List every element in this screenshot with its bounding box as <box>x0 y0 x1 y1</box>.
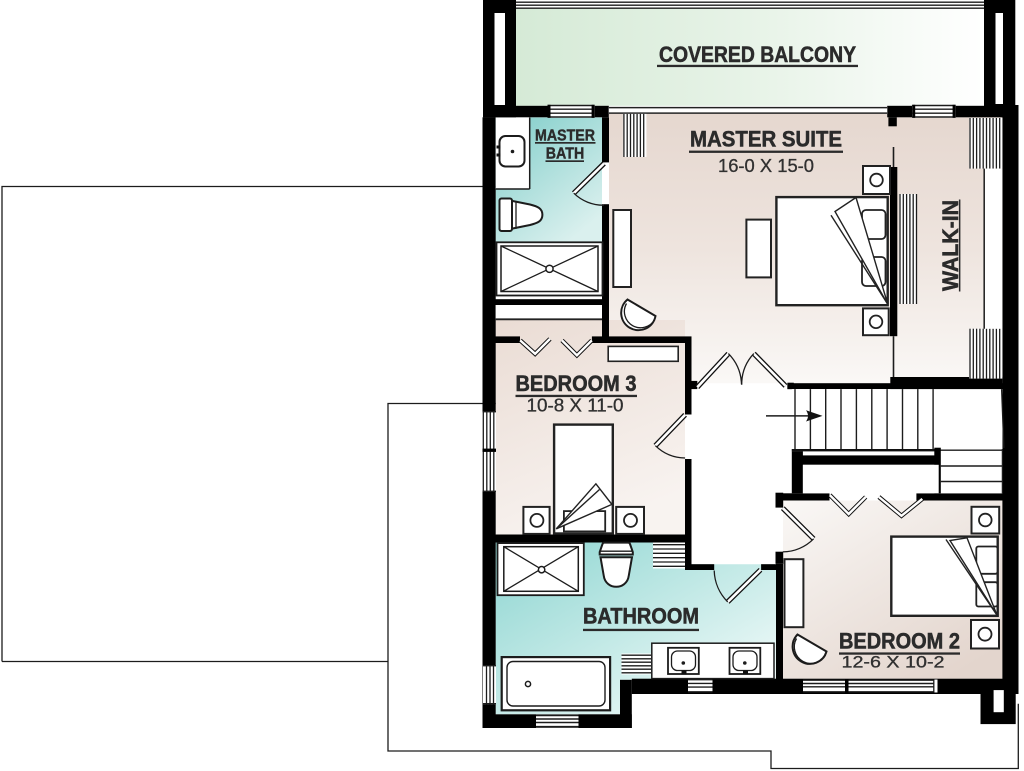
svg-text:BEDROOM 3: BEDROOM 3 <box>516 371 637 396</box>
svg-text:16-0 X 15-0: 16-0 X 15-0 <box>718 155 814 176</box>
svg-text:BATH: BATH <box>546 146 585 163</box>
svg-text:BATHROOM: BATHROOM <box>583 604 699 629</box>
svg-text:12-6 X 10-2: 12-6 X 10-2 <box>842 654 945 672</box>
svg-text:COVERED BALCONY: COVERED BALCONY <box>659 42 856 67</box>
svg-text:MASTER SUITE: MASTER SUITE <box>690 127 842 152</box>
svg-text:10-8 X 11-0: 10-8 X 11-0 <box>527 395 624 416</box>
svg-text:BEDROOM 2: BEDROOM 2 <box>839 629 960 654</box>
svg-text:MASTER: MASTER <box>535 127 595 144</box>
